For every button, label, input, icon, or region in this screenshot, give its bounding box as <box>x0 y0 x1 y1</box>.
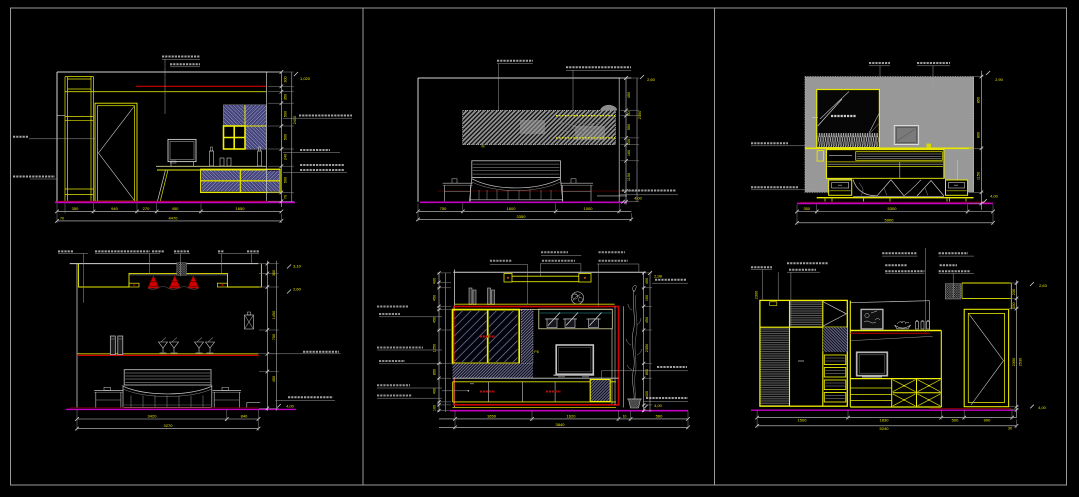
svg-text:3350: 3350 <box>517 214 527 219</box>
svg-text:2350: 2350 <box>638 111 642 119</box>
svg-text:3420: 3420 <box>148 414 158 419</box>
svg-text:5240: 5240 <box>880 426 890 431</box>
svg-text:3,10: 3,10 <box>293 264 302 269</box>
svg-text:240: 240 <box>284 154 288 160</box>
svg-text:M: M <box>482 145 485 149</box>
svg-text:1000: 1000 <box>584 206 594 211</box>
svg-text:P8: P8 <box>534 350 538 354</box>
svg-text:550: 550 <box>627 124 631 130</box>
svg-text:2,60: 2,60 <box>293 287 302 292</box>
svg-text:450: 450 <box>627 92 631 98</box>
svg-text:5900: 5900 <box>885 217 895 222</box>
svg-text:150: 150 <box>1012 302 1016 308</box>
svg-text:70: 70 <box>284 195 288 199</box>
svg-text:2300: 2300 <box>755 291 759 299</box>
svg-text:850: 850 <box>645 369 649 375</box>
svg-text:2350: 2350 <box>1012 358 1016 366</box>
svg-text:1830: 1830 <box>880 418 890 423</box>
svg-text:3840: 3840 <box>556 422 566 427</box>
svg-text:4470: 4470 <box>169 215 179 220</box>
svg-text:840: 840 <box>241 414 248 419</box>
svg-text:3270: 3270 <box>164 423 174 428</box>
svg-text:940: 940 <box>111 206 118 211</box>
svg-text:900: 900 <box>984 418 991 423</box>
svg-text:850: 850 <box>433 369 437 375</box>
svg-text:560: 560 <box>656 414 663 419</box>
svg-text:1650: 1650 <box>236 206 246 211</box>
svg-text:450: 450 <box>272 376 276 382</box>
svg-text:500: 500 <box>284 111 288 117</box>
svg-text:2530: 2530 <box>1019 358 1023 366</box>
svg-text:1450: 1450 <box>272 311 276 319</box>
svg-text:4,00: 4,00 <box>990 195 997 199</box>
svg-text:350: 350 <box>803 206 810 211</box>
svg-text:400: 400 <box>645 278 649 284</box>
svg-text:1600: 1600 <box>507 206 517 211</box>
svg-text:850: 850 <box>977 97 981 103</box>
svg-text:400: 400 <box>645 391 649 397</box>
svg-text:2,90: 2,90 <box>995 77 1004 82</box>
svg-text:800: 800 <box>977 132 981 138</box>
svg-text:1250: 1250 <box>433 344 437 352</box>
svg-text:450: 450 <box>433 317 437 323</box>
svg-text:2400: 2400 <box>293 116 297 124</box>
svg-text:4,00: 4,00 <box>286 404 293 408</box>
svg-text:4,00: 4,00 <box>634 197 641 201</box>
svg-text:2,60: 2,60 <box>647 77 656 82</box>
svg-text:450: 450 <box>645 317 649 323</box>
svg-text:4,00: 4,00 <box>654 404 661 408</box>
svg-text:350: 350 <box>72 206 79 211</box>
svg-text:1500: 1500 <box>798 418 808 423</box>
svg-text:100: 100 <box>433 405 437 411</box>
svg-text:1,020: 1,020 <box>300 76 311 81</box>
svg-text:750: 750 <box>440 206 447 211</box>
svg-text:230: 230 <box>1012 289 1016 295</box>
svg-text:1150: 1150 <box>977 172 981 180</box>
svg-text:700: 700 <box>272 334 276 340</box>
svg-text:2,98: 2,98 <box>654 274 663 279</box>
svg-text:140: 140 <box>627 139 631 145</box>
svg-text:70: 70 <box>60 216 64 220</box>
svg-text:500: 500 <box>284 134 288 140</box>
svg-text:2,63: 2,63 <box>1039 283 1048 288</box>
svg-text:400: 400 <box>433 388 437 394</box>
svg-text:1150: 1150 <box>627 173 631 181</box>
svg-text:1620: 1620 <box>567 414 577 419</box>
svg-text:150: 150 <box>645 295 649 301</box>
svg-text:1650: 1650 <box>487 414 497 419</box>
svg-text:50: 50 <box>627 111 631 115</box>
svg-text:5300: 5300 <box>888 206 898 211</box>
svg-text:2350: 2350 <box>645 344 649 352</box>
svg-text:400: 400 <box>433 278 437 284</box>
svg-text:10: 10 <box>623 415 627 419</box>
svg-text:4,00: 4,00 <box>1038 406 1045 410</box>
svg-text:350: 350 <box>284 94 288 100</box>
svg-text:30: 30 <box>1008 426 1012 430</box>
svg-text:300: 300 <box>272 270 276 276</box>
svg-text:500: 500 <box>284 177 288 183</box>
svg-text:270: 270 <box>143 206 150 211</box>
svg-text:500: 500 <box>952 418 959 423</box>
svg-text:160: 160 <box>627 150 631 156</box>
svg-text:450: 450 <box>172 206 179 211</box>
svg-text:450: 450 <box>433 295 437 301</box>
svg-text:300: 300 <box>284 76 288 82</box>
